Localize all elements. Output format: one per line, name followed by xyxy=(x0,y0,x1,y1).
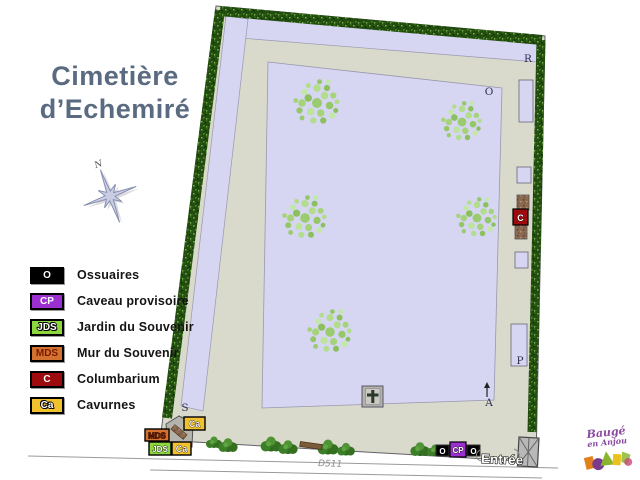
legend-item-mur-du-souvenir: MDS Mur du Souvenir xyxy=(30,345,194,361)
ossuaire-marker-right: O xyxy=(470,447,476,456)
legend-label-mur-du-souvenir: Mur du Souvenir xyxy=(77,346,179,360)
legend-label-ossuaires: Ossuaires xyxy=(77,268,139,282)
bauge-en-anjou-logo: Baugé en Anjou xyxy=(575,423,640,479)
legend-symbol-mur-du-souvenir: MDS xyxy=(30,345,64,362)
legend-label-jardin-du-souvenir: Jardin du Souvenir xyxy=(77,320,194,334)
columbarium-marker: C xyxy=(517,213,524,223)
page-title: Cimetière d’Echemiré xyxy=(8,60,222,126)
mur-du-souvenir-marker: MDS xyxy=(148,432,166,441)
map-legend: O Ossuaires CP Caveau provisoire JDS Jar… xyxy=(30,267,194,423)
caveau-provisoire-marker: CP xyxy=(452,446,464,455)
entrance-label: Entrée xyxy=(481,451,524,467)
logo-art-icon xyxy=(582,444,636,473)
plot-right-top xyxy=(519,80,533,122)
compass-north-label: N xyxy=(92,159,105,172)
legend-label-caveau-provisoire: Caveau provisoire xyxy=(77,294,189,308)
road-line-far xyxy=(150,470,542,478)
legend-item-ossuaires: O Ossuaires xyxy=(30,267,194,283)
legend-symbol-cavurnes: Ca xyxy=(30,397,64,414)
section-label-o: O xyxy=(485,86,494,98)
ossuaire-marker-left: O xyxy=(439,447,445,456)
plot-right-mid1 xyxy=(517,167,531,183)
compass-rose: N xyxy=(71,150,149,235)
legend-symbol-columbarium: C xyxy=(30,371,64,388)
cemetery-plan-page: D511 xyxy=(0,0,640,480)
legend-label-columbarium: Columbarium xyxy=(77,372,160,386)
legend-symbol-caveau-provisoire: CP xyxy=(30,293,64,310)
jardin-du-souvenir-marker: JDS xyxy=(152,445,168,454)
legend-symbol-jardin-du-souvenir: JDS xyxy=(30,319,64,336)
legend-item-caveau-provisoire: CP Caveau provisoire xyxy=(30,293,194,309)
legend-label-cavurnes: Cavurnes xyxy=(77,398,136,412)
cavurnes-marker-bottom: Ca xyxy=(176,444,188,454)
columbarium-wall-lower xyxy=(515,224,527,239)
legend-item-cavurnes: Ca Cavurnes xyxy=(30,397,194,413)
legend-item-columbarium: C Columbarium xyxy=(30,371,194,387)
section-label-r: R xyxy=(524,53,533,65)
cross-monument xyxy=(362,386,383,407)
page-title-line1: Cimetière xyxy=(8,60,222,93)
section-label-a: A xyxy=(484,397,493,409)
legend-item-jardin-du-souvenir: JDS Jardin du Souvenir xyxy=(30,319,194,335)
legend-symbol-ossuaires: O xyxy=(30,267,64,284)
plot-right-mid2 xyxy=(515,252,528,268)
page-title-line2: d’Echemiré xyxy=(8,93,222,126)
road-label: D511 xyxy=(318,459,342,470)
columbarium-wall-upper xyxy=(517,195,529,210)
section-label-p: P xyxy=(516,355,523,367)
